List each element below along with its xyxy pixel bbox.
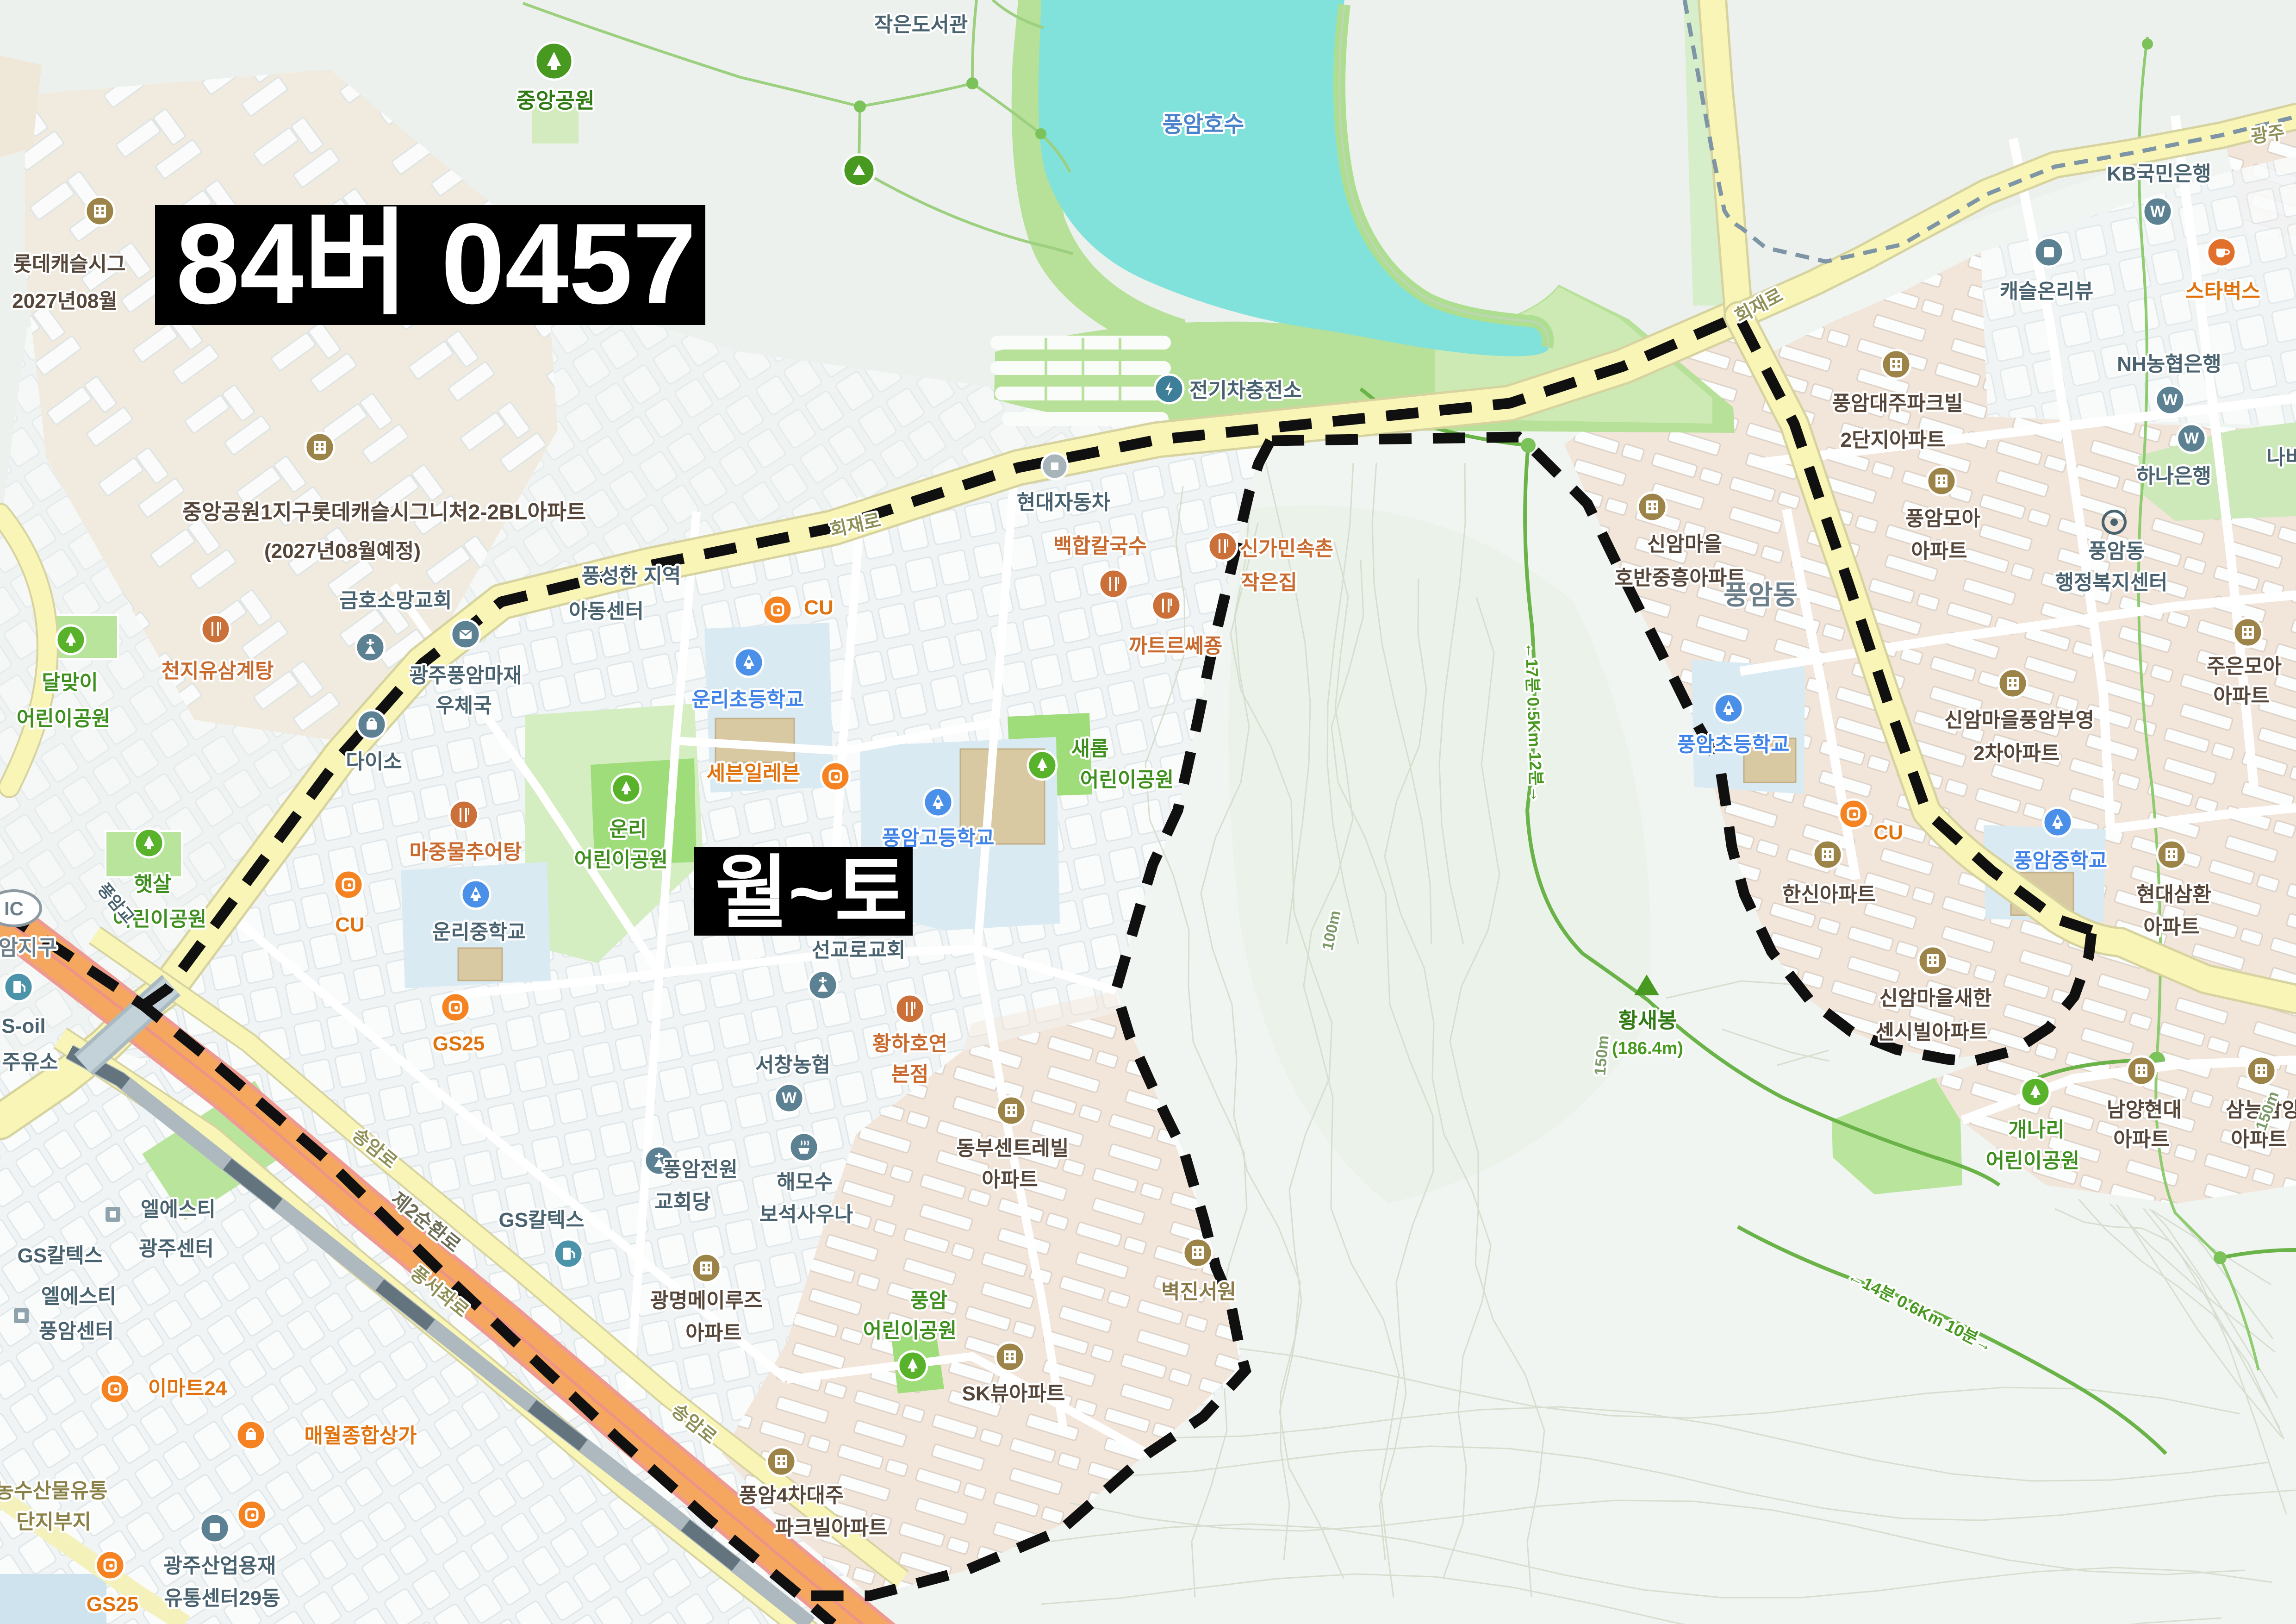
- svg-text:광주풍암마재: 광주풍암마재: [410, 664, 522, 687]
- svg-text:아파트: 아파트: [2231, 1128, 2287, 1151]
- svg-text:남양현대: 남양현대: [2107, 1099, 2182, 1121]
- svg-text:운리초등학교: 운리초등학교: [692, 688, 804, 711]
- svg-text:우체국: 우체국: [436, 694, 492, 717]
- svg-text:새롬: 새롬: [1071, 737, 1109, 760]
- svg-text:아파트: 아파트: [2213, 685, 2269, 707]
- svg-text:풍성한 지역: 풍성한 지역: [582, 565, 681, 587]
- svg-text:캐슬온리뷰: 캐슬온리뷰: [2000, 280, 2093, 303]
- svg-text:풍암중학교: 풍암중학교: [2014, 849, 2107, 872]
- svg-text:유통센터29동: 유통센터29동: [164, 1587, 280, 1610]
- svg-text:CU: CU: [804, 596, 834, 619]
- svg-text:풍암: 풍암: [910, 1289, 948, 1312]
- svg-text:풍암고등학교: 풍암고등학교: [882, 827, 995, 849]
- svg-text:풍암모아: 풍암모아: [1905, 507, 1980, 530]
- svg-text:NH농협은행: NH농협은행: [2117, 353, 2221, 375]
- svg-text:운리: 운리: [610, 818, 647, 841]
- svg-text:교회당: 교회당: [654, 1191, 710, 1213]
- svg-text:S-oil: S-oil: [1, 1015, 45, 1037]
- svg-text:매월종합상가: 매월종합상가: [305, 1424, 417, 1447]
- svg-text:아파트: 아파트: [685, 1322, 741, 1344]
- svg-text:나비: 나비: [2267, 446, 2296, 469]
- svg-text:아파트: 아파트: [982, 1168, 1038, 1191]
- svg-text:신암마을: 신암마을: [1647, 533, 1722, 556]
- svg-text:GS칼텍스: GS칼텍스: [498, 1209, 584, 1231]
- svg-text:월~토: 월~토: [715, 849, 908, 937]
- svg-text:아동센터: 아동센터: [569, 600, 644, 623]
- svg-text:아파트: 아파트: [2113, 1128, 2169, 1151]
- svg-text:하나은행: 하나은행: [2136, 465, 2211, 487]
- svg-text:150m: 150m: [1591, 1035, 1612, 1076]
- svg-text:황새봉: 황새봉: [1618, 1008, 1677, 1032]
- svg-text:엘에스티: 엘에스티: [141, 1198, 216, 1221]
- svg-text:CU: CU: [1873, 821, 1903, 844]
- svg-text:농수산물유통: 농수산물유통: [0, 1480, 107, 1502]
- svg-text:풍암센터: 풍암센터: [39, 1320, 114, 1343]
- svg-text:황하호연: 황하호연: [872, 1032, 947, 1055]
- svg-text:(186.4m): (186.4m): [1612, 1039, 1683, 1058]
- svg-text:운리중학교: 운리중학교: [432, 921, 526, 943]
- svg-text:풍암초등학교: 풍암초등학교: [1677, 733, 1790, 756]
- svg-text:동부센트레빌: 동부센트레빌: [957, 1137, 1069, 1160]
- svg-text:백합칼국수: 백합칼국수: [1053, 535, 1147, 557]
- svg-text:한신아파트: 한신아파트: [1782, 883, 1876, 906]
- svg-text:신암마을풍암부영: 신암마을풍암부영: [1944, 709, 2094, 731]
- svg-text:KB국민은행: KB국민은행: [2107, 162, 2211, 185]
- svg-text:풍암대주파크빌: 풍암대주파크빌: [1832, 392, 1963, 415]
- svg-text:풍암동: 풍암동: [2088, 540, 2144, 562]
- svg-text:센시빌아파트: 센시빌아파트: [1876, 1021, 1988, 1043]
- svg-text:다이소: 다이소: [346, 750, 402, 773]
- svg-text:행정복지센터: 행정복지센터: [2055, 571, 2168, 594]
- svg-text:벽진서원: 벽진서원: [1161, 1280, 1236, 1303]
- svg-text:스타벅스: 스타벅스: [2185, 280, 2260, 303]
- svg-text:어린이공원: 어린이공원: [17, 707, 110, 730]
- svg-text:까트르쎄죵: 까트르쎄죵: [1129, 635, 1222, 657]
- svg-text:중앙공원: 중앙공원: [516, 88, 594, 112]
- svg-text:어린이공원: 어린이공원: [1080, 768, 1174, 791]
- svg-text:단지부지: 단지부지: [16, 1511, 91, 1533]
- svg-text:2차아파트: 2차아파트: [1973, 742, 2060, 765]
- svg-text:현대삼환: 현대삼환: [2136, 883, 2211, 906]
- svg-text:풍암4차대주: 풍암4차대주: [739, 1484, 844, 1507]
- svg-text:광주센터: 광주센터: [139, 1237, 214, 1260]
- svg-text:아파트: 아파트: [2143, 916, 2199, 938]
- svg-text:주유소: 주유소: [2, 1051, 58, 1074]
- svg-text:2027년08월: 2027년08월: [12, 290, 118, 312]
- svg-text:마중물추어탕: 마중물추어탕: [410, 841, 522, 863]
- svg-text:롯데캐슬시그: 롯데캐슬시그: [13, 253, 126, 275]
- svg-text:2단지아파트: 2단지아파트: [1841, 429, 1946, 451]
- svg-text:84버 0457: 84버 0457: [176, 199, 697, 328]
- svg-text:보석사우나: 보석사우나: [759, 1203, 853, 1226]
- svg-text:중앙공원1지구롯데캐슬시그니처2-2BL아파트: 중앙공원1지구롯데캐슬시그니처2-2BL아파트: [182, 500, 586, 524]
- svg-text:어린이공원: 어린이공원: [574, 849, 668, 871]
- svg-text:어린이공원: 어린이공원: [1986, 1149, 2079, 1172]
- svg-text:달맞이: 달맞이: [42, 671, 98, 694]
- svg-text:전기차충전소: 전기차충전소: [1189, 379, 1302, 402]
- svg-text:작은집: 작은집: [1241, 571, 1297, 594]
- svg-text:이마트24: 이마트24: [148, 1377, 227, 1400]
- svg-text:본점: 본점: [891, 1063, 929, 1086]
- svg-text:엘에스티: 엘에스티: [41, 1285, 116, 1308]
- svg-text:신암마을새한: 신암마을새한: [1879, 987, 1992, 1010]
- svg-text:암지구: 암지구: [0, 936, 57, 960]
- svg-text:CU: CU: [335, 913, 365, 936]
- svg-text:GS25: GS25: [433, 1032, 485, 1055]
- svg-text:선교로교회: 선교로교회: [812, 939, 905, 962]
- svg-text:신가민속촌: 신가민속촌: [1240, 537, 1333, 560]
- svg-text:서창농협: 서창농협: [755, 1054, 830, 1076]
- svg-text:작은도서관: 작은도서관: [874, 13, 968, 36]
- svg-text:어린이공원: 어린이공원: [863, 1319, 957, 1342]
- svg-text:GS25: GS25: [87, 1593, 139, 1616]
- svg-text:IC: IC: [4, 898, 24, 919]
- svg-text:햇살: 햇살: [134, 873, 172, 896]
- svg-text:광명메이루즈: 광명메이루즈: [650, 1289, 763, 1312]
- svg-text:주은모아: 주은모아: [2207, 655, 2282, 678]
- svg-text:광주산업용재: 광주산업용재: [164, 1555, 276, 1577]
- svg-text:풍암호수: 풍암호수: [1163, 112, 1244, 137]
- svg-text:GS칼텍스: GS칼텍스: [17, 1244, 103, 1267]
- svg-text:풍암전원: 풍암전원: [663, 1158, 738, 1181]
- svg-text:세븐일레븐: 세븐일레븐: [707, 762, 800, 785]
- svg-text:SK뷰아파트: SK뷰아파트: [962, 1382, 1065, 1405]
- svg-text:천지유삼계탕: 천지유삼계탕: [162, 660, 274, 682]
- svg-text:아파트: 아파트: [1911, 540, 1967, 562]
- svg-text:풍암동: 풍암동: [1724, 580, 1798, 610]
- svg-text:금호소망교회: 금호소망교회: [340, 589, 452, 612]
- svg-text:파크빌아파트: 파크빌아파트: [775, 1517, 888, 1539]
- svg-text:개나리: 개나리: [2008, 1118, 2064, 1141]
- svg-text:(2027년08월예정): (2027년08월예정): [264, 540, 421, 562]
- svg-text:현대자동차: 현대자동차: [1017, 491, 1110, 514]
- svg-text:해모수: 해모수: [777, 1171, 833, 1193]
